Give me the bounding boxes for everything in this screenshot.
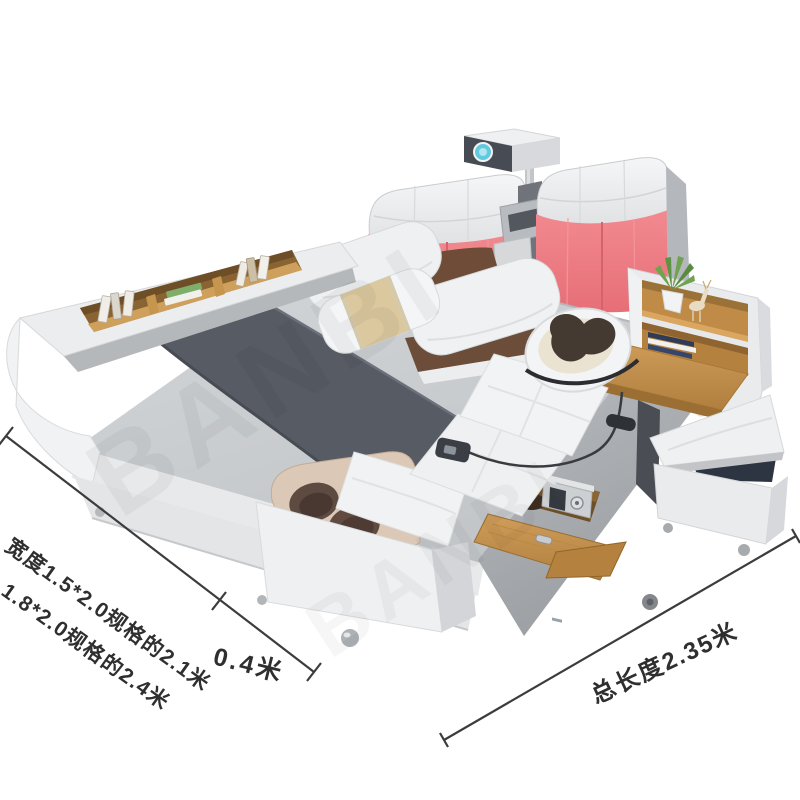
product-image: 宽度1.5*2.0规格的2.1米 1.8*2.0规格的2.4米 0.4米 总长度… bbox=[0, 0, 800, 800]
ottoman-foot bbox=[663, 523, 673, 533]
total-length-label: 总长度2.35米 bbox=[587, 617, 743, 709]
storage-ottoman bbox=[636, 395, 788, 556]
bed-illustration: 宽度1.5*2.0规格的2.1米 1.8*2.0规格的2.4米 0.4米 总长度… bbox=[0, 0, 800, 800]
foot-extension-label: 0.4米 bbox=[211, 643, 287, 688]
bed-foot bbox=[257, 595, 267, 605]
ottoman-foot bbox=[738, 544, 750, 556]
